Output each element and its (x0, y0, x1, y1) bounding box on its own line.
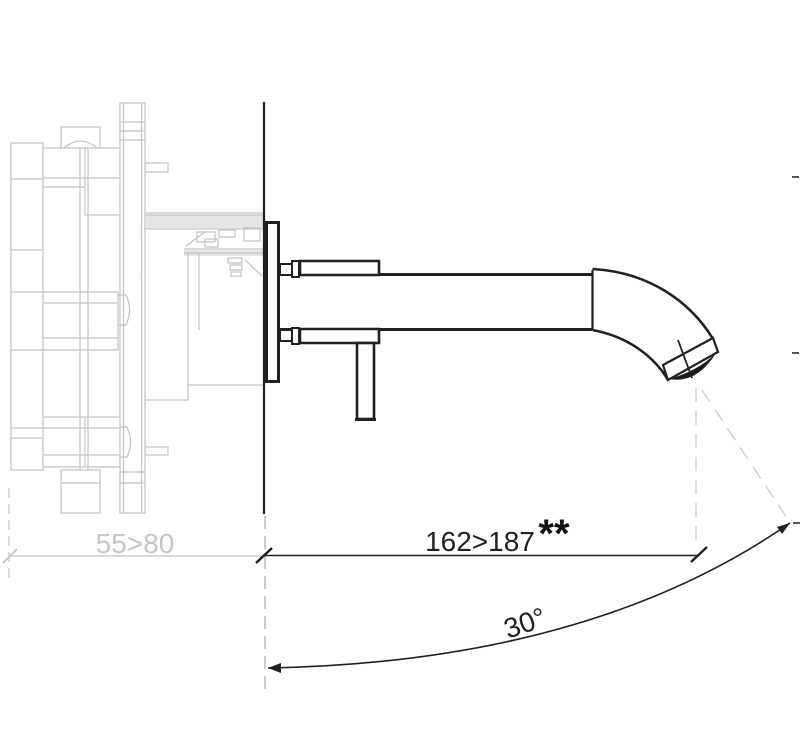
angle-arc-arrow-left (268, 663, 281, 673)
wall-section (264, 102, 265, 690)
spout-projection-lines (696, 388, 789, 548)
spout-reach-note: ** (538, 512, 570, 556)
ghost-cartridge-band-fill (146, 215, 263, 256)
concealed-depth-label: 55>80 (96, 528, 175, 559)
technical-drawing-page: 55>80 162>187 ** 30° (0, 0, 800, 743)
spout-body-mask (279, 272, 591, 328)
dimension-spout-reach: 162>187 ** (256, 512, 707, 563)
faucet-trim (267, 223, 719, 420)
ghost-valve-outlines (11, 103, 264, 513)
concealed-valve-ghost (9, 103, 264, 580)
spout-angle-label: 30° (500, 601, 550, 644)
projection-line-30deg (702, 390, 789, 521)
dimension-concealed-depth: 55>80 (3, 528, 263, 563)
spout-curve-inner (593, 330, 669, 380)
angle-arc-arrow-right (777, 523, 790, 534)
spout-curve-outer (593, 269, 714, 339)
lever-handle (357, 343, 374, 419)
technical-drawing-canvas: 55>80 162>187 ** 30° (0, 0, 800, 743)
wall-escutcheon-plate (267, 223, 279, 382)
spout-reach-label: 162>187 (425, 526, 535, 557)
edge-witness-ticks (792, 177, 800, 523)
